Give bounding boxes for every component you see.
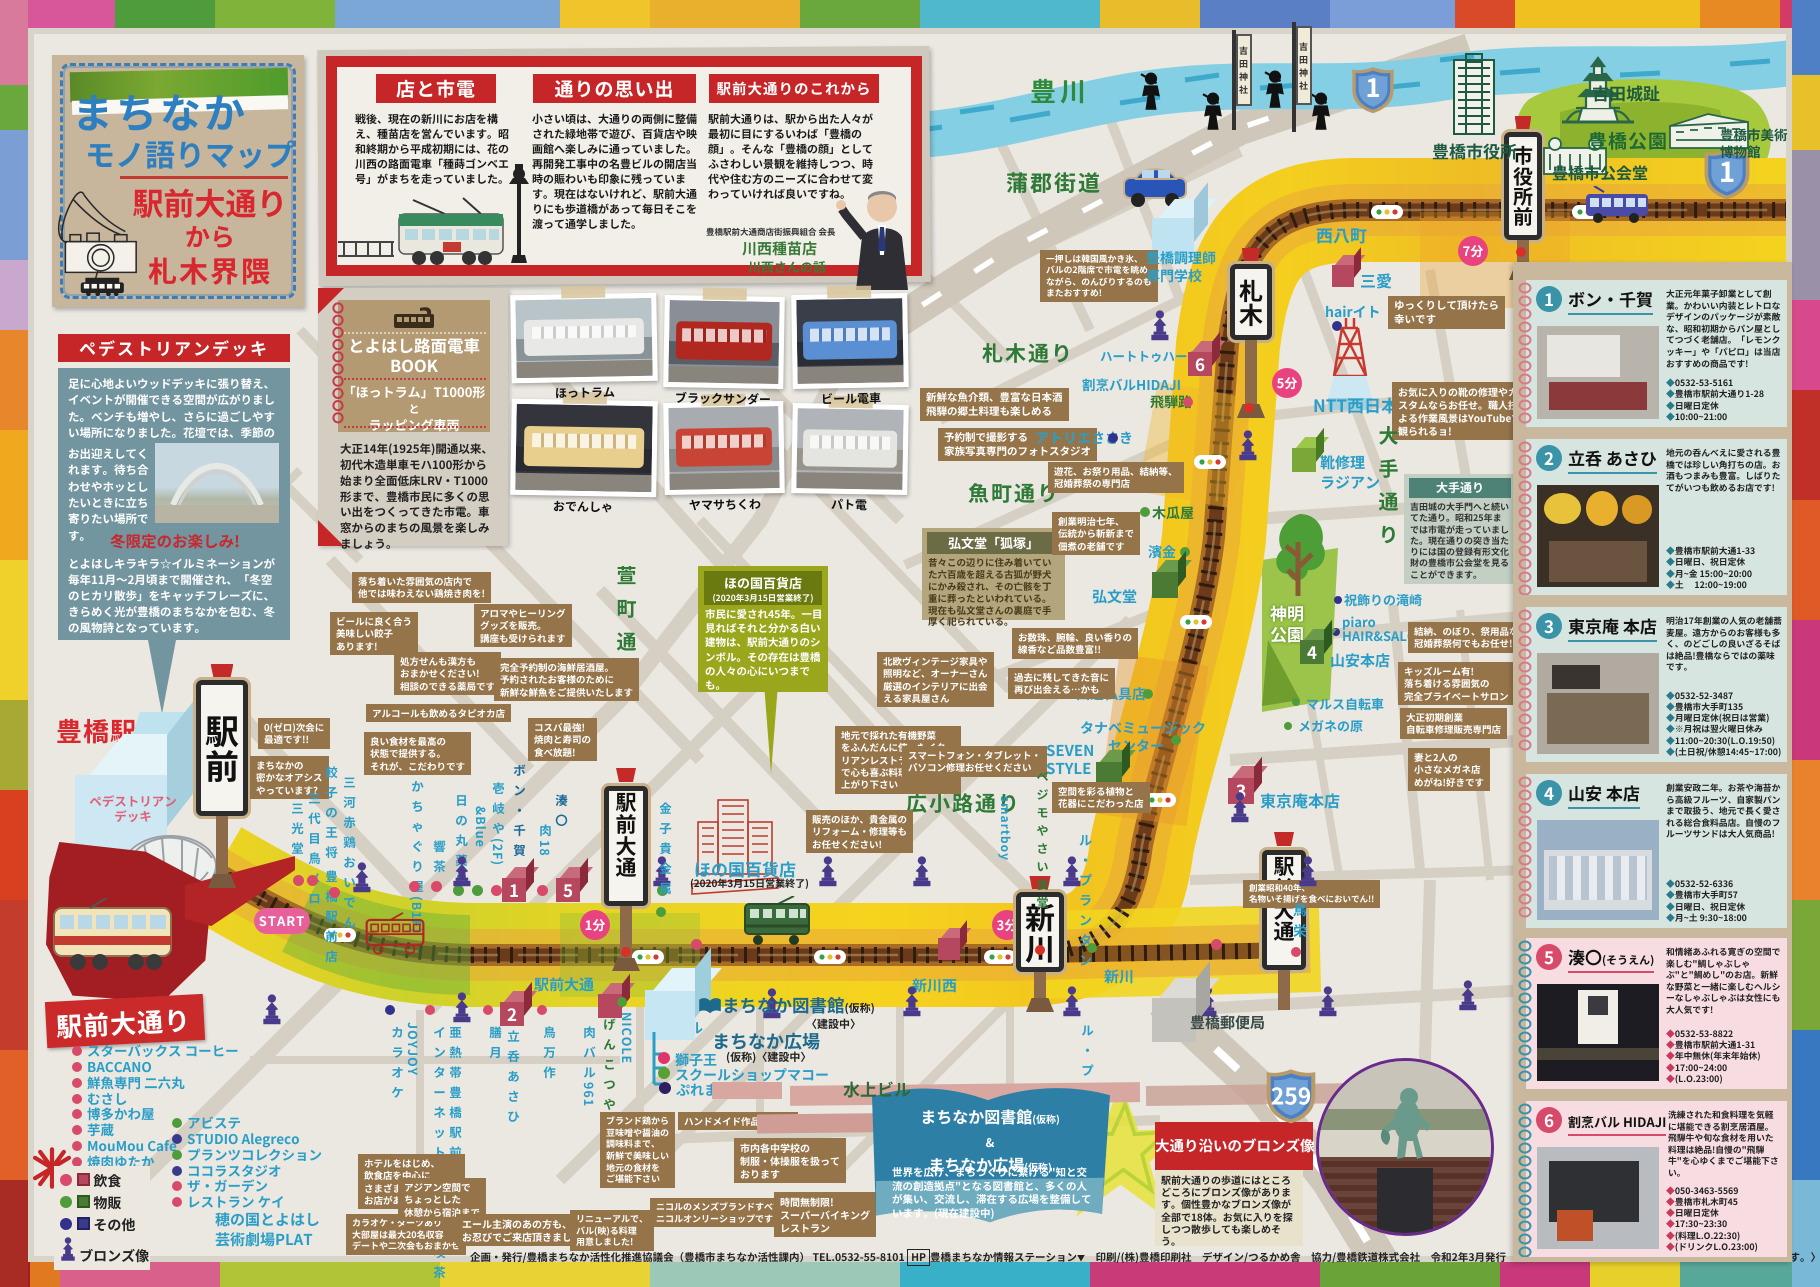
svg-text:1: 1 (1366, 69, 1381, 105)
svg-text:259: 259 (1271, 1077, 1312, 1111)
